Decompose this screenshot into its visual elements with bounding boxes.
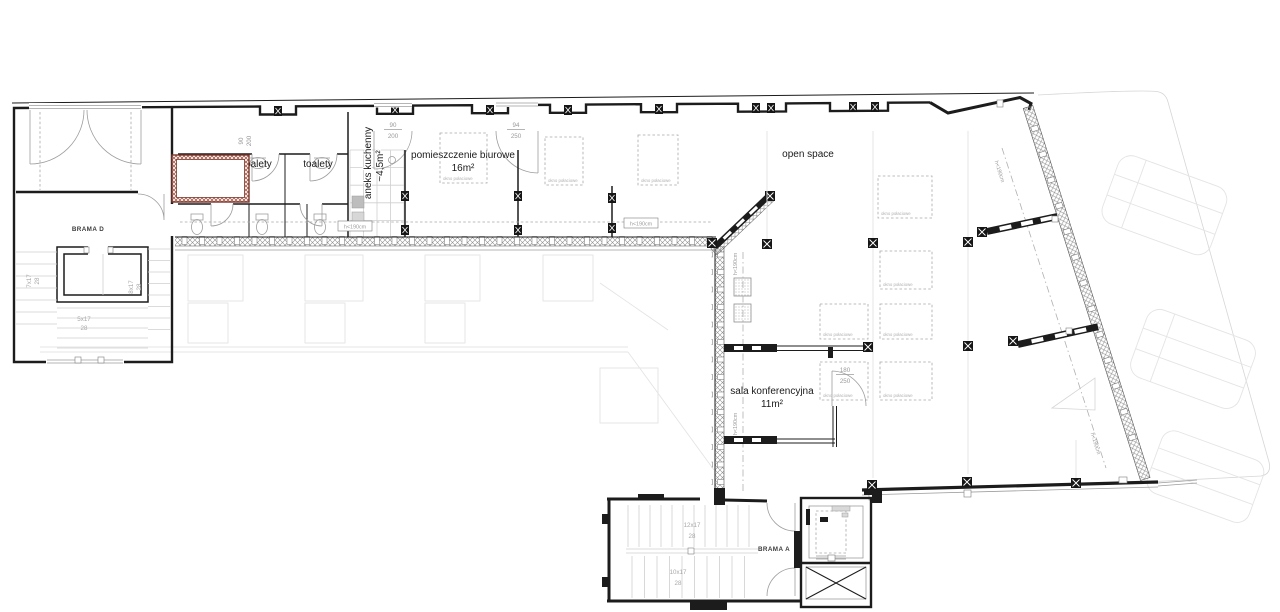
column: [867, 480, 877, 490]
elevator-shaft: [801, 490, 882, 607]
door-dim: 90: [238, 137, 245, 144]
kitchen-label: aneks kuchenny: [363, 127, 374, 199]
stall-door: [300, 204, 322, 226]
door-dim-250: 250: [511, 133, 522, 140]
kitchen-area-label: ~4,5m²: [375, 150, 386, 182]
gate-a-label: BRAMA A: [758, 546, 790, 553]
stair-flight-label: 10x17: [670, 569, 687, 576]
landing-door-lower: [767, 568, 795, 596]
open-space-label: open space: [782, 149, 834, 160]
window-slit: [997, 100, 1003, 107]
column: [963, 341, 973, 351]
left-staircase: 7x17 28 8x17 28 5x17 28: [14, 108, 175, 365]
column: [762, 239, 772, 249]
floor-plan-page: BRAMA D 7x17 28 8x17 28 5x17 28: [0, 0, 1280, 612]
wall-post: [871, 102, 879, 112]
office-rooms: 90 200 94 250 pomieszczenie biurowe 16m²: [374, 100, 616, 237]
height-note: h<190cm: [733, 412, 739, 435]
door-dim-250: 250: [840, 378, 851, 385]
column: [863, 342, 873, 352]
stair-riser-label: 28: [136, 283, 143, 290]
stair-flight-label: 12x17: [684, 522, 701, 529]
right-roof-wedge: [1038, 91, 1270, 526]
height-note: h<190cm: [344, 225, 367, 231]
diagonal-stub-wall-b: [1017, 323, 1099, 348]
wall-post: [849, 102, 857, 112]
stall-door: [211, 204, 233, 226]
skylight-label: okno połaciowe: [883, 393, 913, 398]
stair-riser-label: 28: [81, 325, 88, 332]
door-dim-200: 200: [388, 133, 399, 140]
conference-door: [832, 371, 866, 406]
skylight-label: okno połaciowe: [823, 393, 853, 398]
entry-door-right: [87, 110, 141, 164]
knee-walls: h<190cm h<190cm h<190cm h<190cm: [175, 191, 775, 505]
wall-post: [274, 106, 282, 116]
faint-furniture-2: [1127, 305, 1260, 412]
gate-d-label: BRAMA D: [72, 226, 104, 233]
door-dim: 200: [246, 135, 253, 146]
column: [962, 477, 972, 487]
landing-door-upper: [767, 503, 795, 531]
hall-door: [138, 194, 164, 220]
wall-post: [752, 103, 760, 113]
skylight-label: okno połaciowe: [883, 282, 913, 287]
height-note: h<190cm: [733, 252, 739, 275]
skylight-label: okno połaciowe: [881, 211, 911, 216]
faint-furniture-1: [1098, 152, 1231, 259]
conference-area-label: 11m²: [761, 399, 784, 410]
open-space: open space okno połaciowe okno połaciowe…: [440, 131, 1197, 500]
entry-door-left: [30, 110, 84, 164]
skylight-label: okno połaciowe: [443, 176, 473, 181]
floor-plan-drawing: BRAMA D 7x17 28 8x17 28 5x17 28: [0, 0, 1280, 612]
skylight-label: okno połaciowe: [883, 332, 913, 337]
skylight-label: okno połaciowe: [548, 178, 578, 183]
skylight-label: okno połaciowe: [641, 178, 671, 183]
toilets-label-2: toalety: [303, 159, 332, 170]
door-dim-180: 180: [840, 367, 851, 374]
stair-flight-label: 7x17: [26, 274, 33, 288]
wall-post: [655, 104, 663, 114]
void-cross: [806, 567, 866, 599]
conference-label: sala konferencyjna: [730, 386, 814, 397]
wall-post: [486, 105, 494, 115]
stair-flight-label: 5x17: [77, 316, 91, 323]
door-dim-94: 94: [513, 122, 520, 129]
office-label: pomieszczenie biurowe: [411, 150, 515, 161]
height-note: h<190cm: [993, 160, 1006, 184]
column: [963, 237, 973, 247]
stair-riser-label: 28: [34, 277, 41, 284]
height-note: h<190cm: [1089, 432, 1102, 456]
office-area-label: 16m²: [452, 163, 475, 174]
brick-pier: [734, 278, 751, 296]
stair-riser-label: 28: [675, 580, 682, 587]
brick-pier: [734, 304, 751, 322]
highlighted-shaft: [172, 155, 249, 202]
gate-a-staircase: 12x17 28 10x17 28 BRAMA A: [602, 494, 801, 610]
gate-d-entry: BRAMA D: [16, 103, 164, 233]
stair-flight-label: 8x17: [128, 280, 135, 294]
stair-riser-label: 28: [689, 533, 696, 540]
kitchen-sink: [389, 157, 396, 164]
height-note: h<190cm: [630, 222, 653, 228]
column: [868, 238, 878, 248]
skylights: okno połaciowe okno połaciowe okno połac…: [440, 133, 932, 400]
wall-post: [564, 105, 572, 115]
top-right-slanted-wall: [930, 98, 1031, 114]
slanted-exterior-wall: h<190cm h<190cm: [977, 105, 1150, 480]
column: [1071, 478, 1081, 488]
skylight-label: okno połaciowe: [823, 332, 853, 337]
wall-post: [767, 103, 775, 113]
diagonal-stub-wall-a: [986, 213, 1058, 235]
door-dim-90: 90: [390, 122, 397, 129]
faint-roof-mark: [1052, 378, 1095, 410]
